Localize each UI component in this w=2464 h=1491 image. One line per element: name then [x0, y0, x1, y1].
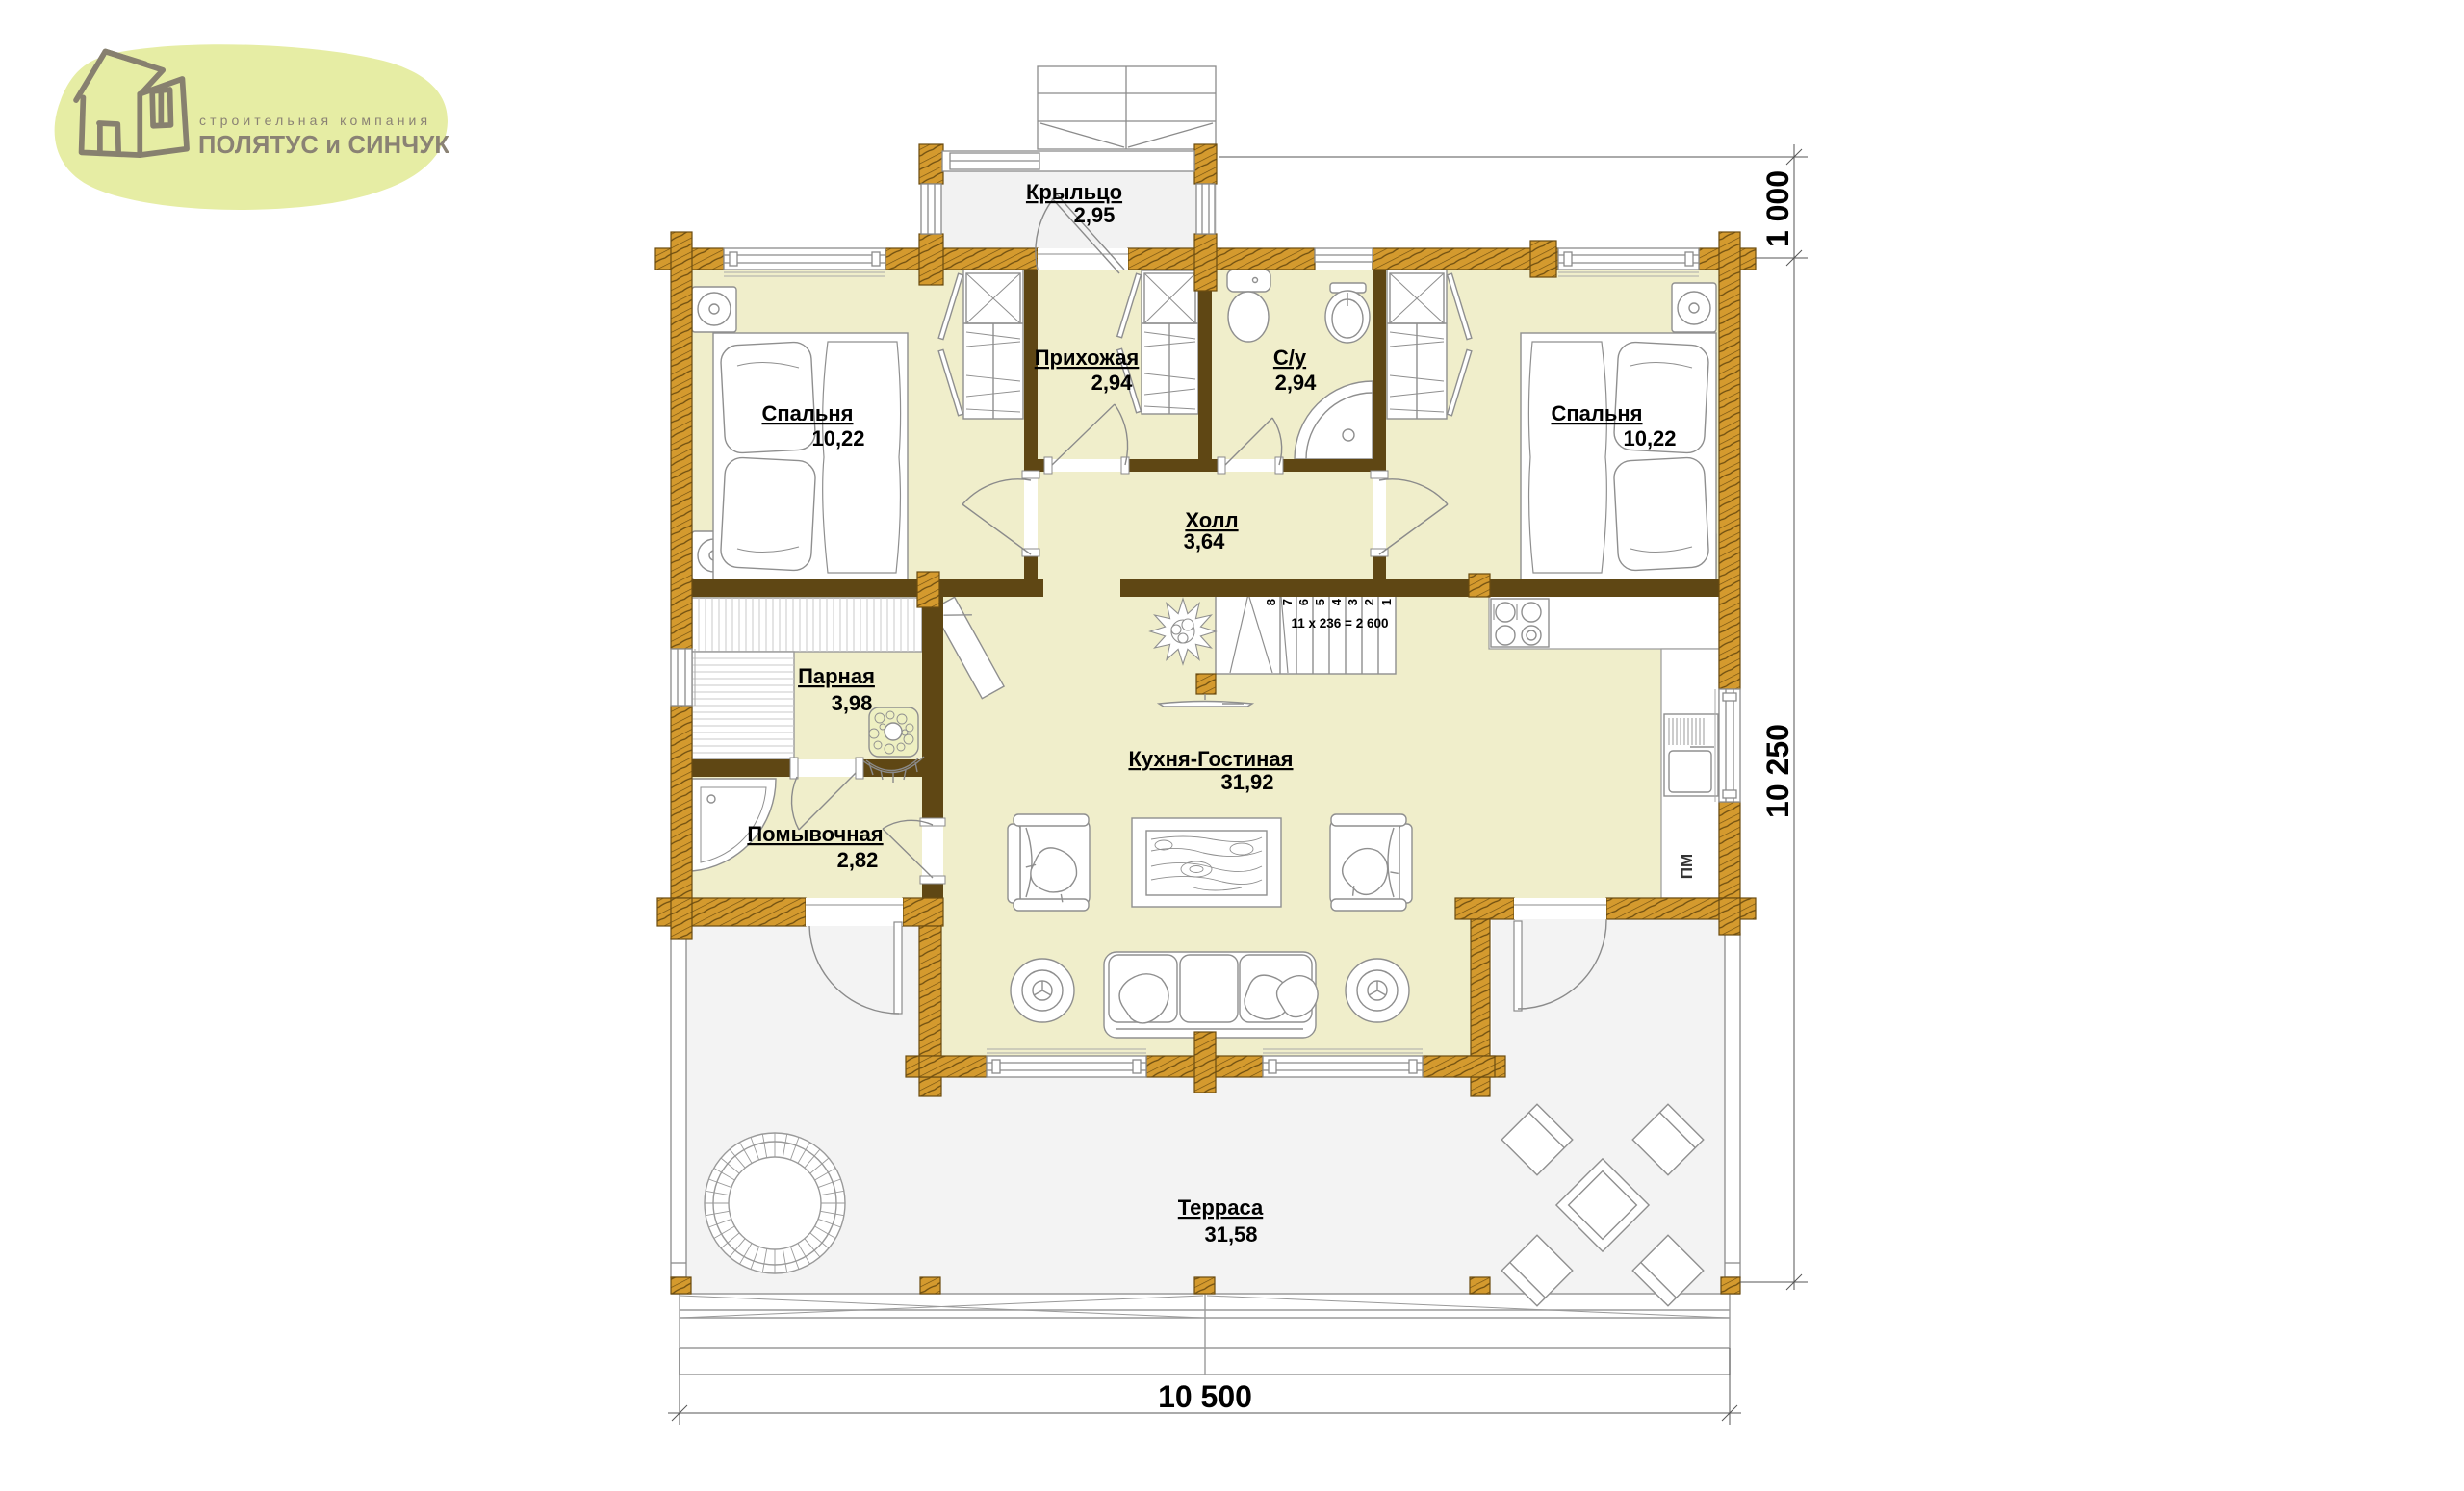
- svg-text:10 500: 10 500: [1158, 1379, 1252, 1414]
- svg-text:6: 6: [1296, 599, 1311, 605]
- svg-text:Терраса: Терраса: [1178, 1195, 1264, 1220]
- svg-text:2: 2: [1362, 599, 1376, 605]
- svg-text:строительная компания: строительная компания: [199, 113, 431, 128]
- svg-text:4: 4: [1329, 598, 1344, 605]
- svg-text:31,92: 31,92: [1220, 770, 1273, 794]
- svg-text:10,22: 10,22: [811, 426, 864, 450]
- svg-text:Спальня: Спальня: [1551, 401, 1642, 425]
- svg-text:3,64: 3,64: [1184, 529, 1226, 553]
- svg-text:10 250: 10 250: [1760, 724, 1795, 818]
- svg-text:2,94: 2,94: [1275, 371, 1318, 395]
- svg-text:Парная: Парная: [798, 664, 875, 688]
- svg-text:2,94: 2,94: [1091, 371, 1134, 395]
- svg-text:11 x 236 = 2 600: 11 x 236 = 2 600: [1292, 616, 1389, 630]
- svg-text:3,98: 3,98: [832, 691, 873, 715]
- svg-text:Крыльцо: Крыльцо: [1026, 180, 1122, 204]
- svg-text:3: 3: [1346, 599, 1360, 605]
- svg-text:Прихожая: Прихожая: [1035, 346, 1140, 370]
- svg-text:10,22: 10,22: [1623, 426, 1676, 450]
- svg-text:7: 7: [1280, 599, 1295, 605]
- svg-text:Спальня: Спальня: [761, 401, 853, 425]
- svg-text:1: 1: [1379, 599, 1394, 605]
- svg-text:31,58: 31,58: [1204, 1222, 1257, 1247]
- svg-text:Кухня-Гостиная: Кухня-Гостиная: [1128, 747, 1293, 771]
- svg-text:2,82: 2,82: [837, 848, 879, 872]
- svg-text:Помывочная: Помывочная: [747, 822, 883, 846]
- svg-text:2,95: 2,95: [1074, 203, 1116, 227]
- svg-text:С/у: С/у: [1273, 346, 1307, 370]
- svg-text:1 000: 1 000: [1760, 170, 1795, 247]
- svg-text:8: 8: [1264, 599, 1278, 605]
- svg-text:ПМ: ПМ: [1678, 854, 1696, 879]
- svg-text:5: 5: [1313, 599, 1327, 605]
- svg-text:ПОЛЯТУС и СИНЧУК: ПОЛЯТУС и СИНЧУК: [198, 132, 449, 159]
